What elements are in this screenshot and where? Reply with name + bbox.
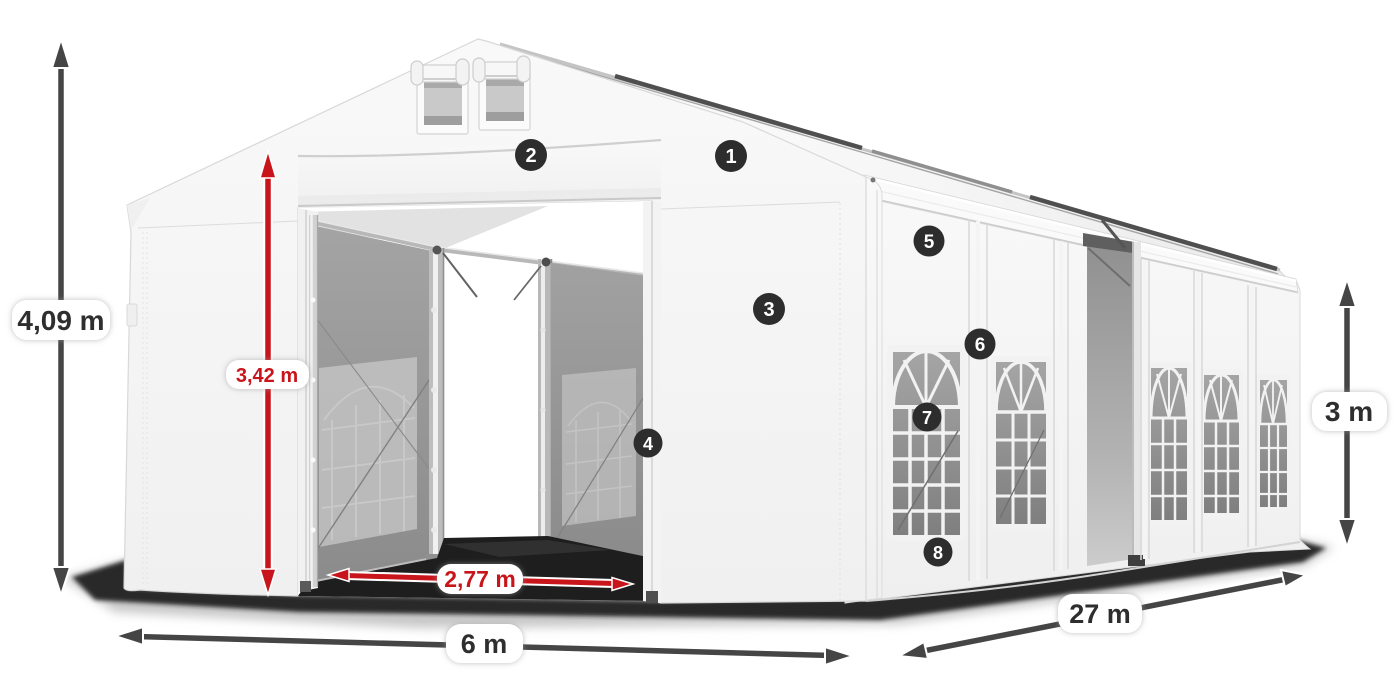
svg-text:3: 3 xyxy=(763,299,774,321)
svg-text:3 m: 3 m xyxy=(1325,396,1373,427)
svg-text:27 m: 27 m xyxy=(1069,599,1131,629)
svg-text:4: 4 xyxy=(643,434,653,454)
svg-text:1: 1 xyxy=(725,146,736,168)
svg-text:2: 2 xyxy=(525,145,536,167)
svg-text:5: 5 xyxy=(924,232,935,253)
svg-text:3,42 m: 3,42 m xyxy=(236,365,298,387)
svg-text:4,09 m: 4,09 m xyxy=(17,305,104,336)
svg-text:7: 7 xyxy=(922,408,932,428)
svg-text:2,77 m: 2,77 m xyxy=(444,566,516,592)
svg-text:6: 6 xyxy=(975,335,986,356)
svg-text:6 m: 6 m xyxy=(461,629,508,659)
svg-text:8: 8 xyxy=(933,543,943,563)
